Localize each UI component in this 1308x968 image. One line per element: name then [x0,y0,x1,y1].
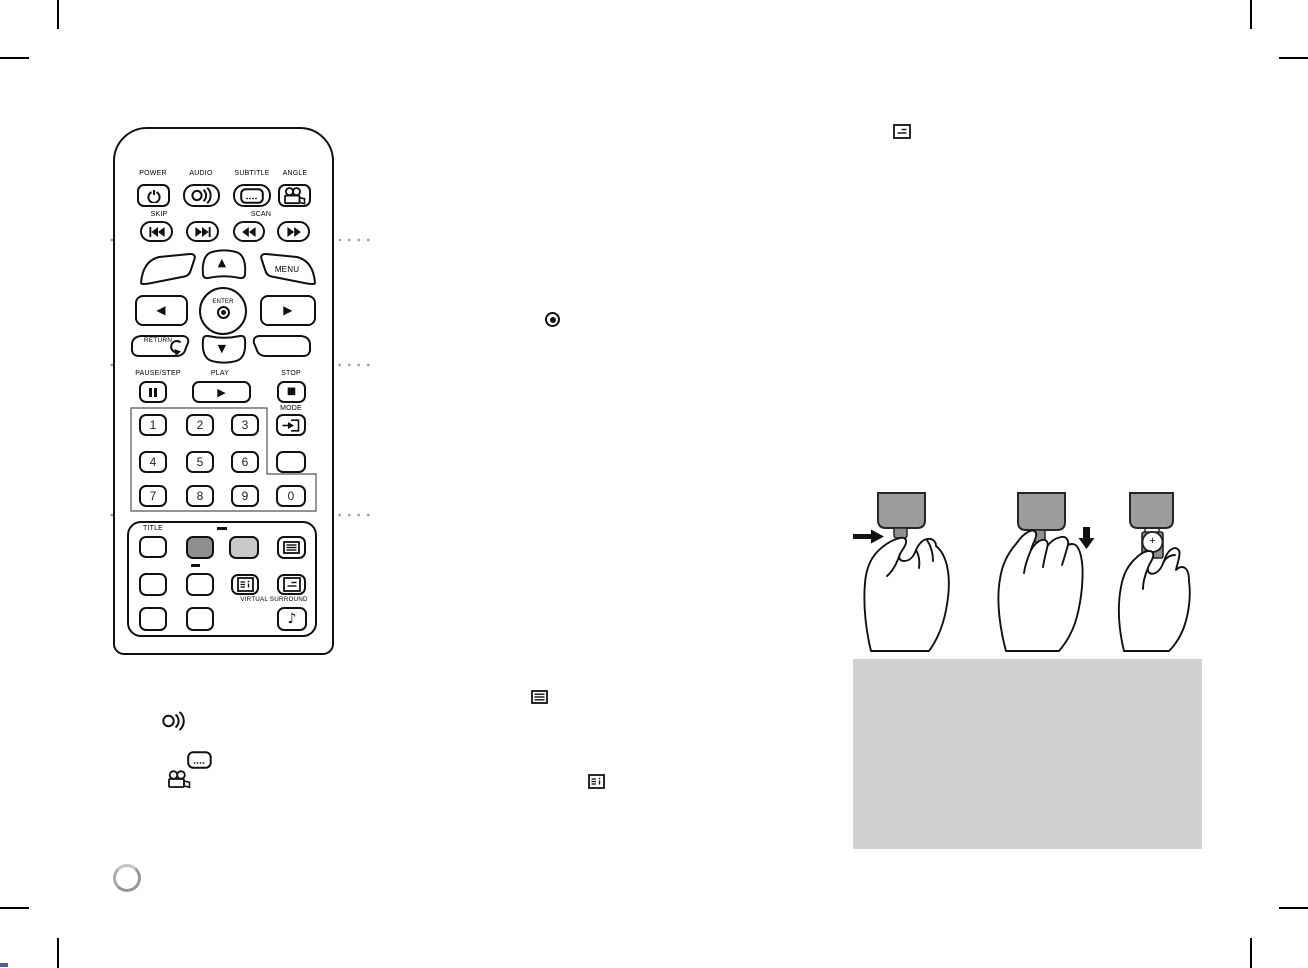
dark-gray-button [186,536,214,559]
camera-angle-icon-inline [167,770,191,790]
hand-outline [998,531,1082,651]
display-info-button [231,574,259,595]
power-label: POWER [139,170,166,177]
display-info-icon [237,577,254,592]
cropmark-top-right-h [1279,57,1308,59]
cropmark-top-right-v [1250,0,1252,29]
enter-dot-icon [217,306,230,319]
blank-button-d [186,607,214,631]
arrow-down-icon [1079,527,1095,549]
blank-button-b [186,573,214,596]
blank-swoosh-top-left [141,254,195,284]
skip-forward-icon [195,227,211,237]
camera-angle-icon [283,187,306,205]
scan-back-icon [242,227,256,237]
menu-lines-icon [283,541,300,554]
dash-mark-1 [217,527,227,530]
scan-label: SCAN [251,211,271,218]
angle-button [278,184,311,207]
digit-9-button: 9 [231,485,259,507]
cropmark-bottom-left-v [57,938,59,968]
cropmark-top-left-v [57,0,59,29]
virtual-surround-label: VIRTUAL SURROUND [240,597,308,603]
dash-mark-2 [191,564,200,567]
osd-button [277,574,306,595]
battery-plus-sign: + [1146,535,1159,547]
play-icon: ▶ [217,387,225,398]
battery-holder-tab [894,528,907,538]
blank-swoosh-bottom-right [254,336,310,356]
pause-icon [149,388,152,397]
power-icon [147,189,161,203]
battery-step-3-illustration [1105,483,1215,653]
digit-5-button: 5 [186,451,214,473]
page-number-bubble [113,864,141,892]
stop-label: STOP [281,370,301,377]
left-icon: ◀ [156,304,165,316]
music-note-button: ♪ [277,607,307,631]
skip-back-icon [149,227,165,237]
audio-waves-icon [191,187,213,204]
menu-label: MENU [275,266,299,274]
digit-4-button: 4 [139,451,167,473]
remote-control-illustration: POWER AUDIO SUBTITLE ANGLE [113,127,334,655]
up-icon: ▲ [218,257,227,268]
arrow-right-icon [853,530,884,544]
title-label: TITLE [143,525,163,532]
return-label: RETURN [144,338,172,345]
down-icon: ▼ [218,343,227,354]
blank-button-keypad [276,451,306,473]
scan-forward-icon [287,227,301,237]
digit-6-button: 6 [231,451,259,473]
cropmark-bottom-right-v [1250,938,1252,968]
hand-outline [864,538,948,651]
subtitle-button [233,184,271,207]
menu-lines-button [277,536,306,559]
subtitle-label: SUBTITLE [234,170,269,177]
battery-step-1-illustration [850,483,970,653]
manual-page: POWER AUDIO SUBTITLE ANGLE [0,0,1308,968]
audio-waves-icon-inline [162,711,186,731]
light-gray-button [229,536,259,559]
note-box [853,659,1202,849]
music-note-icon: ♪ [288,612,297,626]
battery-step-2-illustration [975,483,1105,653]
audio-label: AUDIO [189,170,212,177]
power-button [137,184,170,207]
subtitle-box-icon-inline [187,751,212,769]
osd-box-icon-inline [893,124,911,139]
digit-0-button: 0 [276,485,306,507]
osd-box-icon [283,577,301,592]
cropmark-top-left-h [0,57,29,59]
right-icon: ▶ [283,304,292,316]
audio-button [183,184,220,207]
display-info-icon-inline [588,774,605,789]
remote-bottom [878,493,925,528]
play-label: PLAY [211,370,229,377]
angle-label: ANGLE [283,170,308,177]
menu-box-icon-inline [531,690,548,704]
digit-3-button: 3 [231,414,259,436]
digit-1-button: 1 [139,414,167,436]
enter-target-icon-inline [545,312,560,327]
enter-label: ENTER [212,299,233,305]
pause-step-label: PAUSE/STEP [135,370,180,377]
title-button [139,536,167,558]
blank-button-c [139,607,167,631]
remote-bottom [1018,493,1065,530]
skip-label: SKIP [151,211,168,218]
blank-button-a [139,573,167,596]
subtitle-box-icon [240,188,264,204]
print-artifact [0,963,8,967]
stop-icon: ■ [287,387,296,397]
digit-8-button: 8 [186,485,214,507]
hand-outline [1119,548,1190,651]
digit-7-button: 7 [139,485,167,507]
cropmark-bottom-right-h [1279,907,1308,909]
cropmark-bottom-left-h [0,907,29,909]
digit-2-button: 2 [186,414,214,436]
remote-bottom [1130,493,1173,528]
